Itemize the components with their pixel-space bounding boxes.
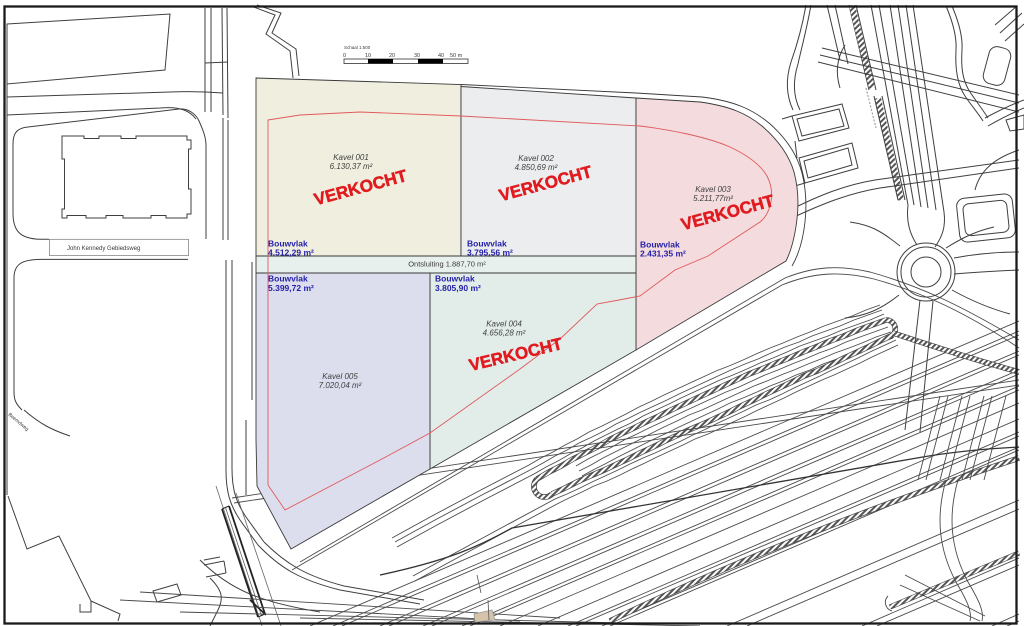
svg-text:3.795,56 m²: 3.795,56 m² — [467, 248, 513, 258]
svg-text:50 m: 50 m — [450, 53, 463, 59]
svg-text:5.211,77m²: 5.211,77m² — [693, 194, 733, 203]
svg-text:10: 10 — [365, 53, 371, 59]
svg-text:Bouwvlak: Bouwvlak — [268, 274, 308, 284]
svg-text:20: 20 — [389, 53, 395, 59]
svg-text:Kavel 003: Kavel 003 — [695, 185, 731, 194]
svg-text:5.399,72 m²: 5.399,72 m² — [268, 283, 314, 293]
svg-text:30: 30 — [414, 53, 420, 59]
svg-text:0: 0 — [343, 53, 346, 59]
svg-text:40: 40 — [438, 53, 444, 59]
svg-text:Kavel 005: Kavel 005 — [322, 372, 358, 381]
svg-text:Kavel 004: Kavel 004 — [486, 320, 522, 329]
svg-text:Bouwvlak: Bouwvlak — [435, 274, 475, 284]
svg-text:Kavel 001: Kavel 001 — [333, 153, 369, 162]
svg-text:6.130,37 m²: 6.130,37 m² — [330, 162, 373, 171]
svg-text:4.512,29 m²: 4.512,29 m² — [268, 248, 314, 258]
svg-text:Kavel 002: Kavel 002 — [518, 154, 554, 163]
svg-text:7.020,04 m²: 7.020,04 m² — [319, 381, 362, 390]
svg-text:Ontsluiting 1.887,70 m²: Ontsluiting 1.887,70 m² — [408, 260, 486, 269]
svg-text:2.431,35 m²: 2.431,35 m² — [640, 249, 686, 259]
svg-text:4.656,28 m²: 4.656,28 m² — [483, 329, 526, 338]
svg-text:3.805,90 m²: 3.805,90 m² — [435, 283, 481, 293]
svg-text:Schaal 1:500: Schaal 1:500 — [344, 45, 371, 50]
svg-text:4.850,69 m²: 4.850,69 m² — [515, 163, 558, 172]
svg-text:John Kennedy Gebiedsweg: John Kennedy Gebiedsweg — [67, 246, 140, 252]
